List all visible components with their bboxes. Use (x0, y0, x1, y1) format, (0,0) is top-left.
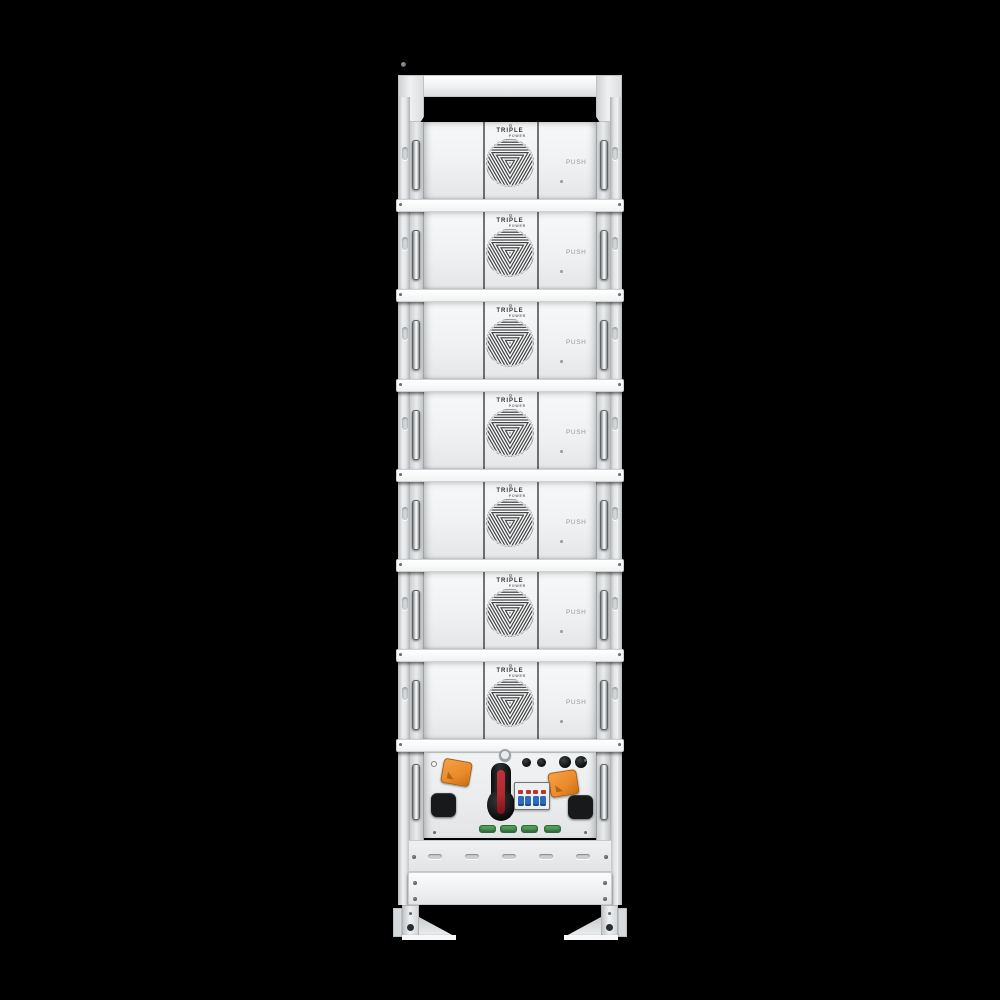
screw (584, 759, 587, 762)
screw (560, 540, 563, 543)
green-terminal-connector (544, 825, 561, 833)
breaker-pole (525, 790, 531, 806)
fan-grille-icon (486, 319, 534, 367)
post-vent-slot (402, 687, 408, 700)
green-terminal-connector (479, 825, 496, 833)
screw (618, 743, 621, 746)
screw (509, 214, 512, 217)
module-handle-left (412, 320, 420, 370)
screw (509, 124, 512, 127)
module-handle-left (412, 230, 420, 280)
anchor-hole (407, 924, 414, 931)
dc-disconnect-switch (487, 763, 515, 821)
shelf-rail (396, 559, 624, 572)
black-port-left (431, 793, 456, 817)
screw (399, 293, 402, 296)
battery-module: TRIPLE POWER PUSH (424, 482, 596, 559)
brand-logo: TRIPLE POWER (483, 394, 537, 408)
shelf-rail (396, 739, 624, 752)
round-connector-small (522, 758, 531, 767)
screw (401, 62, 406, 67)
screw (608, 912, 611, 915)
battery-module: TRIPLE POWER PUSH (424, 302, 596, 379)
leg-left (402, 905, 419, 938)
brand-logo: TRIPLE POWER (483, 664, 537, 678)
screw (618, 383, 621, 386)
post-vent-slot (402, 327, 408, 340)
module-handle-right (600, 140, 608, 190)
screw (618, 293, 621, 296)
fan-grille-icon (486, 139, 534, 187)
panel-seam (537, 662, 539, 739)
module-handle-left (412, 140, 420, 190)
module-handle-left (412, 410, 420, 460)
foot-gusset-left (419, 917, 456, 937)
brand-sub-name: POWER (483, 315, 537, 319)
battery-module-7: TRIPLE POWER PUSH (398, 662, 622, 752)
screw (399, 743, 402, 746)
brand-logo: TRIPLE POWER (483, 214, 537, 228)
battery-rack-tower: TRIPLE POWER PUSH TRIPLE (398, 62, 622, 940)
push-latch-label: PUSH (566, 609, 586, 616)
vent-panel (408, 840, 612, 872)
panel-seam (537, 302, 539, 379)
battery-module-2: TRIPLE POWER PUSH (398, 212, 622, 302)
module-handle-left (412, 680, 420, 730)
circuit-breaker (514, 782, 550, 810)
orange-connector-right (547, 769, 580, 798)
screw (399, 203, 402, 206)
screw (409, 912, 412, 915)
screw (413, 897, 417, 901)
screw (399, 383, 402, 386)
fan-grille-icon (486, 679, 534, 727)
screw (560, 450, 563, 453)
brand-sub-name: POWER (483, 675, 537, 679)
post-vent-slot (612, 597, 618, 610)
round-connector-small (537, 758, 546, 767)
module-handle-right (600, 410, 608, 460)
post-vent-slot (612, 687, 618, 700)
battery-module-1: TRIPLE POWER PUSH (398, 122, 622, 212)
screw (603, 881, 607, 885)
green-terminal-connector (500, 825, 517, 833)
foot-plate-left (393, 908, 402, 937)
base-crossbar (408, 872, 612, 905)
brand-logo: TRIPLE POWER (483, 304, 537, 318)
brand-sub-name: POWER (483, 585, 537, 589)
screw (560, 180, 563, 183)
screw (560, 630, 563, 633)
push-latch-label: PUSH (566, 519, 586, 526)
battery-module: TRIPLE POWER PUSH (424, 122, 596, 199)
brand-logo: TRIPLE POWER (483, 574, 537, 588)
post-vent-slot (612, 147, 618, 160)
shelf-rail (396, 649, 624, 662)
control-unit-row (398, 752, 622, 840)
screw (509, 484, 512, 487)
leg-right (601, 905, 618, 938)
foot-plate-right (618, 908, 627, 937)
breaker-pole (540, 790, 546, 806)
module-handle-left (412, 764, 420, 820)
breaker-toggle (518, 796, 524, 806)
post-vent-slot (402, 147, 408, 160)
panel-seam (537, 212, 539, 289)
battery-module-5: TRIPLE POWER PUSH (398, 482, 622, 572)
screw (399, 473, 402, 476)
battery-module: TRIPLE POWER PUSH (424, 212, 596, 289)
screw (509, 304, 512, 307)
breaker-indicator (526, 790, 531, 794)
product-image-canvas: TRIPLE POWER PUSH TRIPLE (0, 0, 1000, 1000)
battery-module-4: TRIPLE POWER PUSH (398, 392, 622, 482)
post-vent-slot (612, 417, 618, 430)
breaker-toggle (533, 796, 539, 806)
module-handle-right (600, 680, 608, 730)
screw (509, 664, 512, 667)
green-terminal-connector (521, 825, 538, 833)
panel-seam (537, 572, 539, 649)
fan-grille-icon (486, 409, 534, 457)
screw (603, 897, 607, 901)
fan-grille-icon (486, 499, 534, 547)
breaker-toggle (540, 796, 546, 806)
brand-sub-name: POWER (483, 135, 537, 139)
battery-module: TRIPLE POWER PUSH (424, 572, 596, 649)
top-crossbar (398, 75, 622, 97)
brand-sub-name: POWER (483, 225, 537, 229)
module-handle-right (600, 590, 608, 640)
screw (433, 831, 436, 834)
post-vent-slot (402, 237, 408, 250)
brand-logo: TRIPLE POWER (483, 124, 537, 138)
module-handle-right (600, 320, 608, 370)
module-handle-left (412, 500, 420, 550)
post-vent-slot (402, 507, 408, 520)
push-latch-label: PUSH (566, 339, 586, 346)
screw (560, 270, 563, 273)
push-latch-label: PUSH (566, 429, 586, 436)
post-vent-slot (402, 417, 408, 430)
screw (412, 855, 416, 859)
post-vent-slot (612, 327, 618, 340)
screw (399, 653, 402, 656)
panel-seam (537, 122, 539, 199)
screw (413, 881, 417, 885)
screw (399, 563, 402, 566)
foot-base-right (564, 935, 618, 940)
post-vent-slot (402, 597, 408, 610)
black-port-right (568, 795, 593, 819)
switch-red-stripe (497, 770, 505, 814)
panel-seam (537, 392, 539, 469)
push-latch-label: PUSH (566, 159, 586, 166)
breaker-indicator (518, 790, 523, 794)
round-connector-large (559, 756, 571, 768)
round-connector-large (575, 756, 587, 768)
shelf-rail (396, 199, 624, 212)
anchor-hole (606, 924, 613, 931)
vent-slot (428, 854, 442, 859)
breaker-indicator (533, 790, 538, 794)
screw (560, 360, 563, 363)
vent-slot (539, 854, 553, 859)
shelf-rail (396, 289, 624, 302)
foot-base-left (402, 935, 456, 940)
battery-module: TRIPLE POWER PUSH (424, 392, 596, 469)
switch-mount-ring (499, 749, 511, 761)
screw (618, 653, 621, 656)
fan-grille-icon (486, 589, 534, 637)
brand-sub-name: POWER (483, 495, 537, 499)
screw (604, 855, 608, 859)
push-latch-label: PUSH (566, 699, 586, 706)
battery-module-6: TRIPLE POWER PUSH (398, 572, 622, 662)
breaker-pole (518, 790, 524, 806)
post-vent-slot (612, 507, 618, 520)
battery-module-3: TRIPLE POWER PUSH (398, 302, 622, 392)
screw (584, 831, 587, 834)
breaker-indicator (541, 790, 546, 794)
screw (618, 203, 621, 206)
brand-logo: TRIPLE POWER (483, 484, 537, 498)
breaker-toggle (525, 796, 531, 806)
foot-gusset-right (564, 917, 601, 937)
push-latch-label: PUSH (566, 249, 586, 256)
panel-hole (431, 761, 437, 767)
fan-grille-icon (486, 229, 534, 277)
post-vent-slot (612, 237, 618, 250)
brand-sub-name: POWER (483, 405, 537, 409)
screw (618, 563, 621, 566)
module-handle-right (600, 764, 608, 820)
battery-module: TRIPLE POWER PUSH (424, 662, 596, 739)
screw (509, 394, 512, 397)
shelf-rail (396, 379, 624, 392)
module-handle-left (412, 590, 420, 640)
module-handle-right (600, 230, 608, 280)
control-unit-panel (424, 752, 596, 838)
top-cavity-shadow (420, 97, 600, 123)
panel-seam (537, 482, 539, 559)
vent-slot (576, 854, 590, 859)
orange-connector-left (440, 758, 473, 788)
vent-slot (502, 854, 516, 859)
module-handle-right (600, 500, 608, 550)
breaker-pole (533, 790, 539, 806)
shelf-rail (396, 469, 624, 482)
screw (509, 574, 512, 577)
screw (618, 473, 621, 476)
screw (560, 720, 563, 723)
vent-slot (465, 854, 479, 859)
